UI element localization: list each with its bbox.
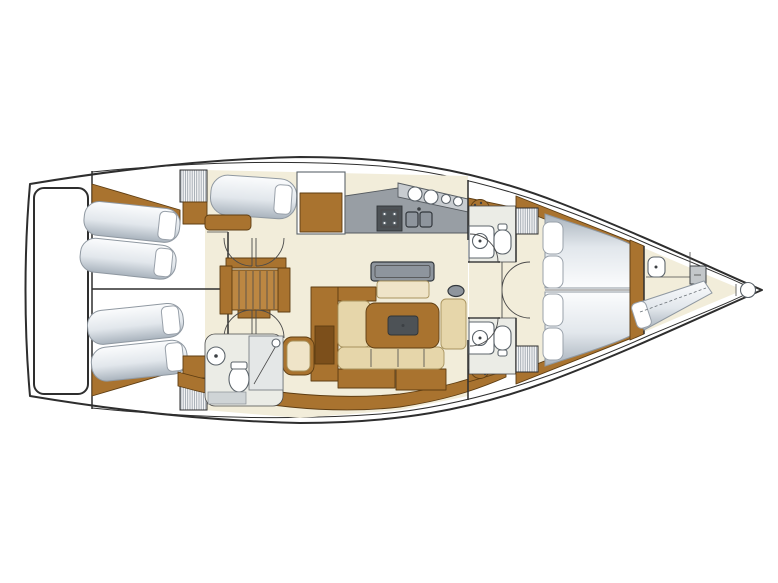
stbd-head-toilet-tank <box>498 350 507 356</box>
sofa-cushion-bottom <box>338 347 444 369</box>
forepeak-sink-drain <box>655 266 658 269</box>
chart-cabinet-door <box>315 326 334 364</box>
sofa-step-right <box>396 369 446 390</box>
burner-large-1 <box>408 187 422 201</box>
stove-knob-3 <box>383 221 386 224</box>
single-berth-pillow <box>274 184 293 214</box>
sofa-backrest-wood <box>338 287 376 301</box>
stairs-rail-right <box>278 268 290 312</box>
stbd-head-sink-drain <box>479 337 482 340</box>
day-head-toilet <box>229 366 249 392</box>
port-head-toilet-tank <box>498 224 507 230</box>
shower-head <box>272 339 280 347</box>
pouf <box>448 286 464 297</box>
aft-port-wardrobe <box>180 170 207 202</box>
sofa-cushion-left <box>338 301 370 347</box>
yacht-floor-plan <box>0 0 778 583</box>
stairs-rail-left <box>220 266 232 314</box>
port-head-sink-drain <box>479 240 482 243</box>
stove-knob-2 <box>393 212 396 215</box>
burner-small-2 <box>454 197 463 206</box>
day-head-toilet-tank <box>231 362 247 369</box>
floor-plan-svg <box>0 0 778 583</box>
chart-seat-cushion <box>287 341 310 371</box>
stbd-head-toilet <box>494 326 511 350</box>
vberth-pillow-1 <box>543 222 563 254</box>
stove-knob-1 <box>383 212 386 215</box>
day-head-mat <box>208 392 246 404</box>
sofa-cushion-right <box>441 299 466 349</box>
single-berth-base <box>205 215 251 230</box>
owner-wardrobe-stbd <box>516 346 538 372</box>
aft-port-pillow-inboard <box>153 248 173 278</box>
burner-small-1 <box>442 195 451 204</box>
aft-port-cabinet <box>183 202 207 224</box>
bow-anchor-fitting <box>741 283 756 298</box>
table-inset-knob <box>402 324 405 327</box>
sofa-step-left <box>338 369 395 388</box>
galley-fridge-front <box>300 193 342 232</box>
day-head <box>205 334 283 406</box>
vberth-pillow-4 <box>543 328 563 360</box>
swim-platform <box>34 188 88 394</box>
bench-backrest <box>377 281 429 298</box>
burner-large-2 <box>424 190 438 204</box>
aft-port-pillow-outboard <box>157 211 177 241</box>
galley-sink-bowl-1 <box>406 212 418 227</box>
stove-knob-4 <box>393 221 396 224</box>
aft-stbd-pillow-outboard <box>165 342 185 372</box>
day-head-sink-drain <box>214 354 218 358</box>
single-berth <box>209 174 298 220</box>
galley-faucet <box>417 207 421 211</box>
vberth-pillow-2 <box>543 256 563 288</box>
sideboard <box>371 262 434 281</box>
aft-stbd-pillow-inboard <box>161 305 181 335</box>
galley-sink-bowl-2 <box>420 212 432 227</box>
owner-wardrobe-port <box>516 208 538 234</box>
vberth-pillow-3 <box>543 294 563 326</box>
port-head-toilet <box>494 230 511 254</box>
